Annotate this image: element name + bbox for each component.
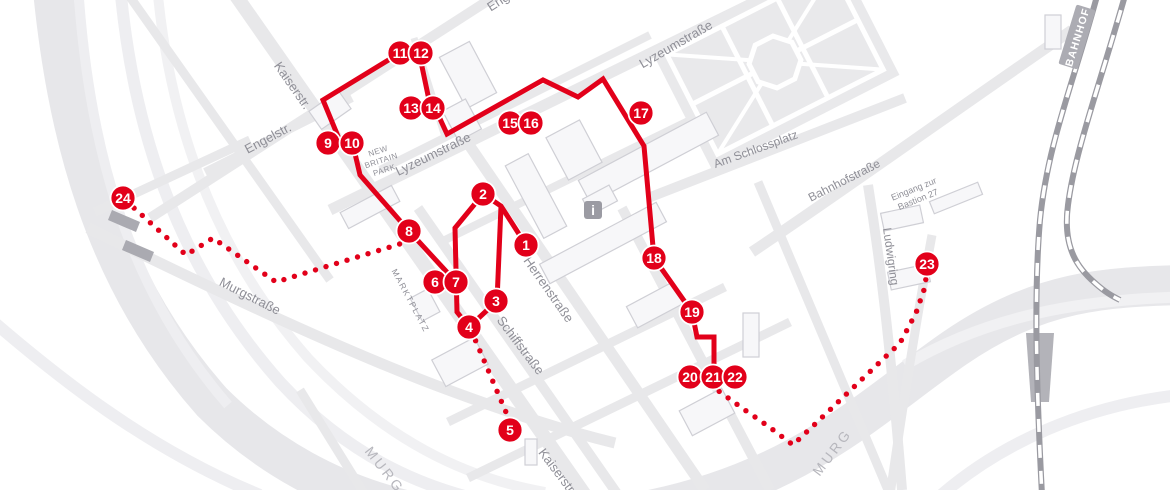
water-tower (743, 313, 759, 357)
route-dot (376, 248, 381, 253)
route-dot (226, 246, 231, 251)
tour-stop-marker-5[interactable]: 5 (498, 418, 523, 443)
station-monument (1045, 15, 1061, 49)
marker-number: 11 (393, 45, 408, 61)
route-dot (884, 353, 889, 358)
route-dot (499, 399, 504, 404)
tour-stop-marker-19[interactable]: 19 (680, 300, 705, 325)
route-dot (909, 318, 914, 323)
tour-stop-marker-12[interactable]: 12 (409, 41, 434, 66)
marker-number: 3 (492, 293, 500, 309)
marker-number: 12 (413, 45, 429, 61)
route-dot (921, 288, 926, 293)
route-dot (770, 427, 775, 432)
route-dot (355, 254, 360, 259)
route-dot (804, 429, 809, 434)
route-dot (743, 408, 748, 413)
marker-number: 21 (705, 369, 721, 385)
route-dot (199, 243, 204, 248)
marker-number: 2 (479, 186, 487, 202)
tour-stop-marker-9[interactable]: 9 (316, 131, 341, 156)
route-dot (365, 251, 370, 256)
route-dot (918, 298, 923, 303)
tour-stop-marker-10[interactable]: 10 (340, 131, 365, 156)
route-dot (397, 241, 402, 246)
route-dot (899, 338, 904, 343)
route-dot (208, 237, 213, 242)
route-dot (164, 235, 169, 240)
tour-stop-marker-8[interactable]: 8 (397, 219, 422, 244)
route-dot (235, 253, 240, 258)
route-dot (292, 274, 297, 279)
route-dot (914, 309, 919, 314)
marker-number: 9 (324, 135, 332, 151)
route-dot (313, 267, 318, 272)
marker-number: 1 (522, 237, 530, 253)
route-dot (486, 368, 491, 373)
route-dot (386, 245, 391, 250)
route-dot (812, 422, 817, 427)
route-segment-solid (497, 206, 501, 301)
map-canvas: iBAHNHOF Kaiserstr.Engelstr.Engelstr.Lyz… (0, 0, 1170, 490)
marker-number: 16 (523, 115, 539, 131)
info-icon-glyph: i (591, 202, 595, 218)
route-dot (503, 409, 508, 414)
route-dot (868, 369, 873, 374)
tour-stop-marker-4[interactable]: 4 (457, 315, 482, 340)
route-dot (140, 213, 145, 218)
marker-number: 23 (919, 256, 935, 272)
ring-road (930, 395, 1170, 490)
street-label-engelstr: Engelstr. (484, 0, 535, 14)
marker-number: 20 (682, 369, 698, 385)
marker-number: 15 (502, 115, 518, 131)
route-dot (860, 376, 865, 381)
tour-stop-marker-2[interactable]: 2 (471, 182, 496, 207)
tour-stop-marker-7[interactable]: 7 (444, 270, 469, 295)
route-dot (334, 261, 339, 266)
tour-stop-marker-14[interactable]: 14 (421, 96, 446, 121)
tour-stop-marker-3[interactable]: 3 (484, 289, 509, 314)
route-dot (734, 402, 739, 407)
route-dot (148, 220, 153, 225)
marker-number: 22 (727, 369, 743, 385)
marker-number: 5 (506, 422, 514, 438)
route-dot (494, 389, 499, 394)
route-dot (482, 358, 487, 363)
street-label-engelstr: Engelstr. (242, 120, 294, 157)
marker-number: 8 (405, 223, 413, 239)
tour-stop-marker-23[interactable]: 23 (915, 252, 940, 277)
route-dot (302, 270, 307, 275)
route-dot (836, 399, 841, 404)
tour-stop-marker-22[interactable]: 22 (723, 365, 748, 390)
route-dot (779, 434, 784, 439)
route-dot (725, 395, 730, 400)
marker-number: 18 (646, 250, 662, 266)
monument (525, 439, 537, 465)
route-dot (477, 348, 482, 353)
marker-number: 24 (115, 190, 131, 206)
tour-stop-marker-24[interactable]: 24 (111, 186, 136, 211)
route-dot (490, 379, 495, 384)
route-dot (156, 228, 161, 233)
route-dot (323, 264, 328, 269)
info-point-icon[interactable]: i (584, 201, 602, 219)
route-dot (189, 249, 194, 254)
route-dot (271, 278, 276, 283)
route-dot (262, 272, 267, 277)
route-dot (788, 440, 793, 445)
marker-number: 19 (684, 304, 700, 320)
route-dot (820, 414, 825, 419)
marker-number: 14 (425, 100, 441, 116)
marker-number: 4 (465, 319, 473, 335)
marker-number: 7 (452, 274, 460, 290)
route-dot (761, 421, 766, 426)
route-dot (172, 242, 177, 247)
church-building (439, 41, 496, 108)
tour-stop-marker-1[interactable]: 1 (514, 233, 539, 258)
route-dot (180, 250, 185, 255)
marker-number: 6 (431, 274, 439, 290)
marker-number: 17 (633, 105, 649, 121)
church-building (679, 388, 735, 435)
tour-stop-marker-20[interactable]: 20 (678, 365, 703, 390)
route-dot (892, 346, 897, 351)
route-dot (217, 240, 222, 245)
route-dot (253, 265, 258, 270)
route-dot (281, 277, 286, 282)
route-dot (796, 437, 801, 442)
route-dot (752, 414, 757, 419)
route-dot (344, 258, 349, 263)
route-dot (876, 361, 881, 366)
bastion-entrance (929, 182, 982, 214)
route-dot (923, 277, 928, 282)
tour-stop-marker-18[interactable]: 18 (642, 246, 667, 271)
route-dot (828, 407, 833, 412)
tour-stop-marker-17[interactable]: 17 (629, 101, 654, 126)
marker-number: 13 (403, 100, 419, 116)
route-dot (844, 391, 849, 396)
marker-number: 10 (344, 135, 360, 151)
route-dot (852, 384, 857, 389)
city-walking-tour-map: iBAHNHOF Kaiserstr.Engelstr.Engelstr.Lyz… (0, 0, 1170, 490)
route-dot (904, 328, 909, 333)
route-dot (244, 259, 249, 264)
tour-stop-marker-16[interactable]: 16 (519, 111, 544, 136)
